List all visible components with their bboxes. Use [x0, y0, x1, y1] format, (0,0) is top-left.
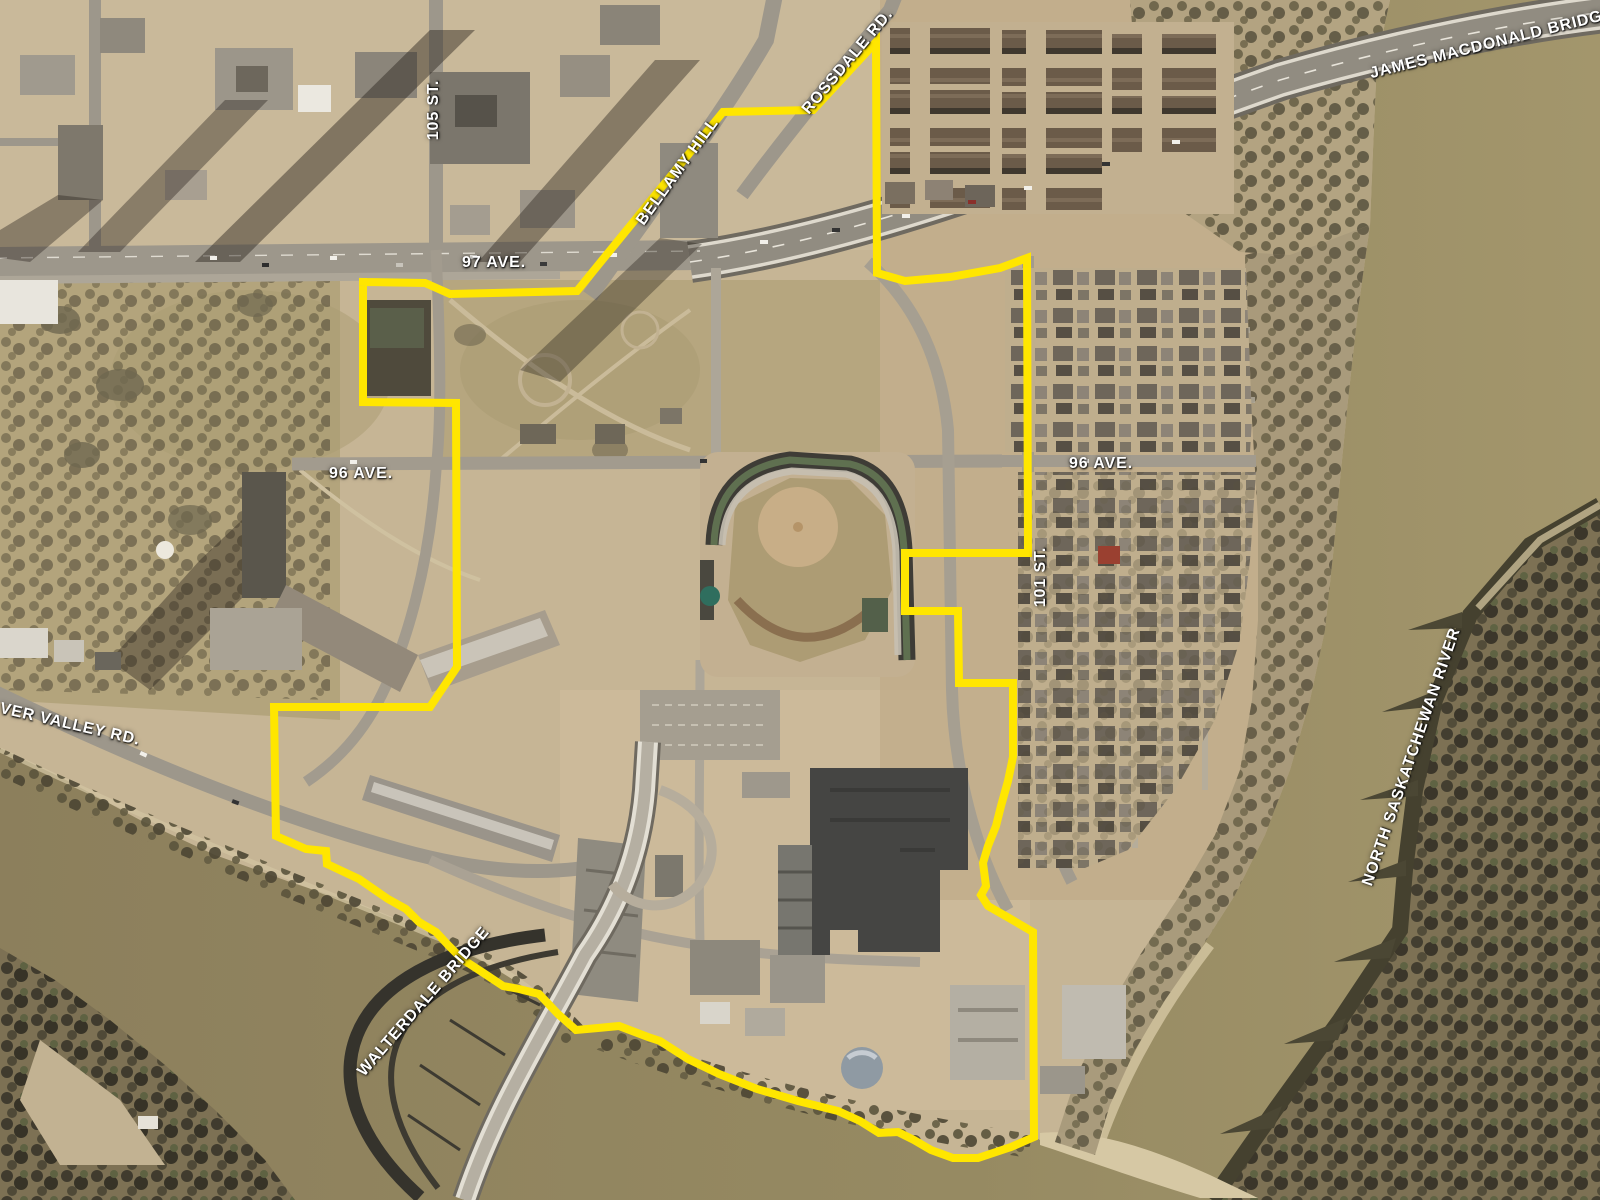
baseball-stadium: [700, 452, 915, 677]
label-101-st: 101 ST.: [1032, 547, 1050, 608]
road-97-ave: [0, 255, 700, 262]
aerial-map: 105 ST. 97 AVE. BELLAMY HILL ROSSDALE RD…: [0, 0, 1600, 1200]
label-105-st: 105 ST.: [425, 80, 443, 141]
label-96-ave-east: 96 AVE.: [1069, 455, 1133, 473]
label-96-ave-west: 96 AVE.: [329, 465, 393, 483]
townhouse-complex: [882, 22, 1234, 214]
aerial-imagery: [0, 0, 1600, 1200]
label-97-ave: 97 AVE.: [462, 254, 526, 272]
